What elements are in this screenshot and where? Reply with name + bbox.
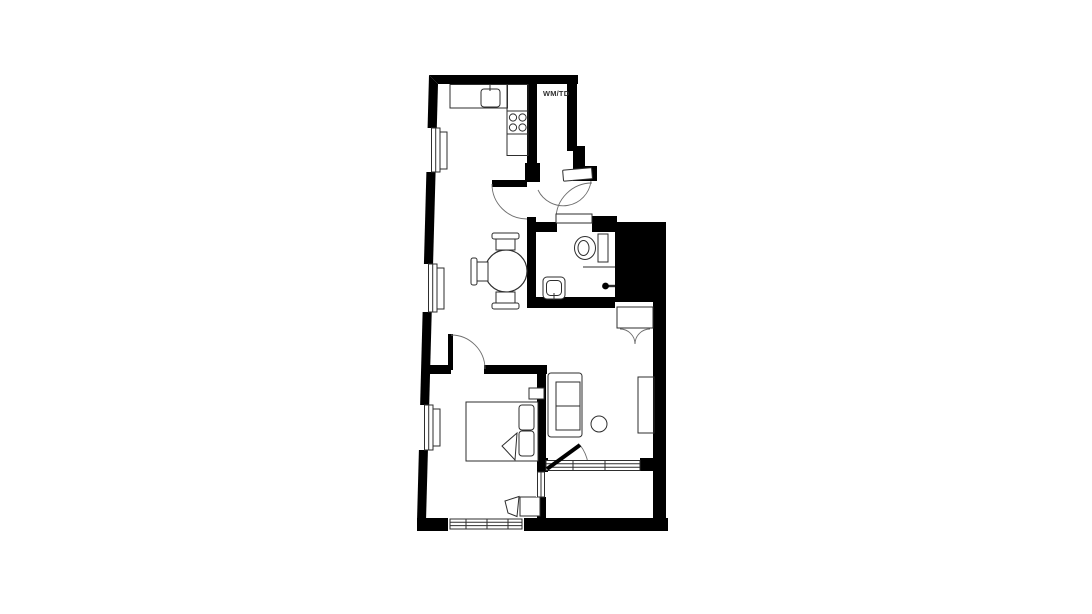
dining-chair bbox=[471, 258, 488, 285]
pillow bbox=[519, 405, 534, 430]
wall bbox=[527, 297, 615, 308]
kitchen-door-arc bbox=[492, 184, 527, 219]
toilet bbox=[575, 234, 609, 262]
bedroom-door-leaf bbox=[448, 334, 453, 370]
hob-burner bbox=[519, 114, 526, 121]
hob-burner bbox=[509, 114, 516, 121]
wall bbox=[525, 163, 540, 182]
hob-burner bbox=[519, 124, 526, 131]
wall bbox=[653, 295, 666, 531]
kitchen-counter bbox=[450, 85, 508, 109]
floor-plan: WM/TD bbox=[0, 0, 1092, 614]
side-window bbox=[536, 472, 546, 497]
wardrobe-door-arc bbox=[635, 329, 650, 344]
sofa bbox=[548, 373, 582, 437]
kitchen-door-leaf bbox=[492, 180, 527, 187]
dressing-chair bbox=[505, 497, 540, 517]
tv-unit bbox=[638, 377, 654, 433]
floor-plan-canvas: WM/TD bbox=[0, 0, 1092, 614]
bedroom-window bbox=[448, 518, 524, 532]
wall bbox=[592, 216, 617, 232]
shower-head bbox=[602, 283, 615, 290]
wall bbox=[527, 217, 536, 305]
wardrobe bbox=[617, 307, 653, 328]
wall bbox=[429, 75, 578, 84]
hob-burner bbox=[509, 124, 516, 131]
dining-chair bbox=[492, 292, 519, 309]
window bbox=[422, 264, 444, 312]
wall bbox=[567, 75, 577, 151]
window bbox=[426, 128, 448, 172]
wardrobe-door-arc bbox=[620, 329, 635, 344]
side-table bbox=[591, 416, 607, 432]
dining-chair bbox=[492, 233, 519, 250]
bathroom-door-leaf bbox=[556, 214, 592, 223]
wall bbox=[429, 365, 451, 374]
bedroom-door-arc bbox=[451, 335, 485, 369]
balcony-glazing bbox=[546, 461, 640, 471]
wall bbox=[536, 222, 557, 232]
wall bbox=[640, 458, 653, 471]
nightstand bbox=[529, 388, 544, 399]
entrance-door-arc bbox=[538, 181, 591, 206]
washbasin bbox=[543, 277, 565, 300]
window bbox=[419, 405, 441, 450]
shaft bbox=[615, 222, 666, 302]
utility-closet-label: WM/TD bbox=[543, 89, 570, 98]
dining-table bbox=[485, 250, 527, 292]
pillow bbox=[519, 431, 534, 456]
wall bbox=[573, 146, 585, 168]
entrance-door-leaf bbox=[563, 168, 593, 181]
kitchen-sink bbox=[481, 89, 500, 107]
